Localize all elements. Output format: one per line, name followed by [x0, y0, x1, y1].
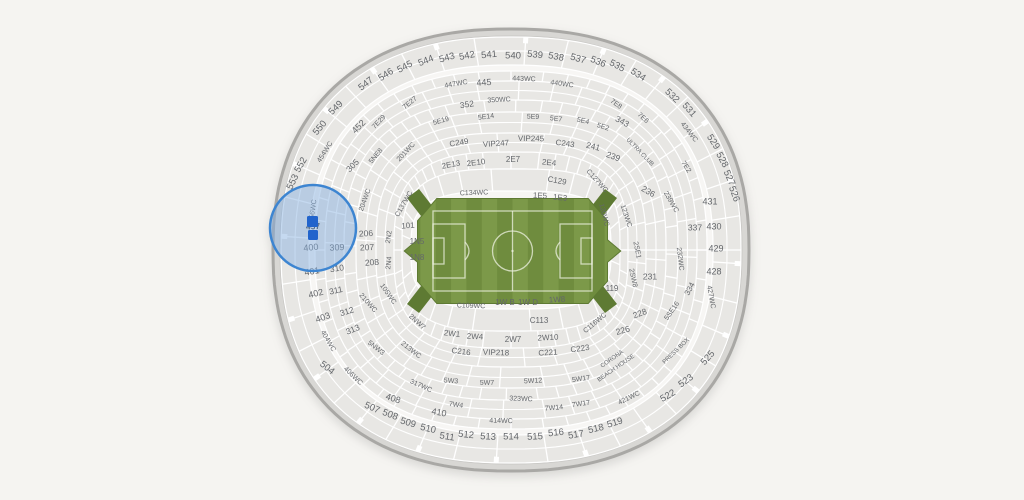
seat-map-canvas[interactable]: 5475465455445435425415405395385375365355… [0, 0, 1024, 500]
section-label-1e3[interactable]: 1E3 [552, 192, 568, 202]
vomitory-gap [288, 318, 294, 320]
section-label-540[interactable]: 540 [505, 50, 521, 61]
section-label-2w1[interactable]: 2W1 [443, 328, 461, 339]
vomitory-gap [358, 418, 362, 423]
section-label-337[interactable]: 337 [688, 222, 702, 232]
section-label-vip245[interactable]: VIP245 [518, 134, 545, 143]
section-label-511[interactable]: 511 [439, 430, 456, 443]
section-label-513[interactable]: 513 [480, 431, 496, 443]
section-label-2w10[interactable]: 2W10 [537, 333, 559, 343]
selected-seat-marker[interactable] [308, 230, 318, 240]
section-label-512[interactable]: 512 [458, 429, 475, 442]
vomitory-gap [585, 450, 587, 456]
section-label-c113[interactable]: C113 [530, 316, 549, 325]
section-label-119[interactable]: 119 [606, 284, 619, 293]
section-label-515[interactable]: 515 [527, 431, 543, 443]
section-label-5w3[interactable]: 5W3 [444, 377, 459, 385]
section-label-5w12[interactable]: 5W12 [524, 377, 543, 385]
section-label-323wc[interactable]: 323WC [509, 395, 533, 403]
section-label-5w7[interactable]: 5W7 [480, 380, 495, 387]
section-label-516[interactable]: 516 [548, 427, 565, 440]
section-label-429[interactable]: 429 [708, 243, 723, 253]
section-label-1w-d[interactable]: 1W D [518, 298, 538, 307]
vomitory-gap [693, 388, 698, 392]
section-label-vip218[interactable]: VIP218 [483, 348, 510, 358]
section-label-2n4[interactable]: 2N4 [385, 256, 393, 270]
section-label-431[interactable]: 431 [702, 196, 717, 206]
section-label-208[interactable]: 208 [365, 257, 380, 268]
section-label-1w-b[interactable]: 1W B [495, 298, 515, 307]
section-label-350wc[interactable]: 350WC [487, 96, 511, 104]
section-label-414wc[interactable]: 414WC [489, 418, 512, 425]
section-label-5e9[interactable]: 5E9 [527, 114, 540, 121]
stadium-map-svg[interactable]: 5475465455445435425415405395385375365355… [0, 0, 1024, 500]
section-label-2w7[interactable]: 2W7 [505, 335, 522, 344]
vomitory-gap [435, 44, 437, 50]
vomitory-gap [723, 334, 729, 337]
section-label-101[interactable]: 101 [401, 221, 415, 231]
section-label-c134wc[interactable]: C134WC [460, 189, 489, 197]
section-label-2e7[interactable]: 2E7 [506, 155, 521, 164]
vomitory-gap [418, 446, 421, 452]
section-label-1w8[interactable]: 1W8 [549, 295, 566, 305]
vomitory-gap [647, 427, 651, 432]
section-label-c221[interactable]: C221 [538, 348, 558, 358]
vomitory-gap [372, 68, 376, 73]
section-label-352[interactable]: 352 [459, 98, 475, 110]
vomitory-gap [314, 375, 319, 379]
section-label-2w4[interactable]: 2W4 [467, 332, 484, 342]
section-label-443wc[interactable]: 443WC [512, 75, 536, 83]
section-label-231[interactable]: 231 [643, 271, 657, 281]
vomitory-gap [602, 48, 605, 54]
selected-seat-marker[interactable] [307, 216, 318, 227]
section-label-539[interactable]: 539 [527, 49, 544, 62]
section-label-1n5[interactable]: 1N5 [410, 237, 425, 246]
section-label-2e4[interactable]: 2E4 [541, 157, 557, 167]
section-label-207[interactable]: 207 [360, 242, 375, 252]
section-label-vip247[interactable]: VIP247 [483, 138, 510, 149]
section-label-430[interactable]: 430 [706, 221, 721, 231]
section-label-445[interactable]: 445 [476, 77, 492, 88]
section-label-428[interactable]: 428 [706, 266, 721, 276]
section-label-1e5[interactable]: 1E5 [533, 191, 548, 201]
section-label-541[interactable]: 541 [481, 49, 498, 61]
vomitory-gap [660, 77, 664, 82]
section-label-1n8[interactable]: 1N8 [410, 253, 425, 262]
playing-field [405, 189, 621, 313]
section-label-c109wc[interactable]: C109WC [457, 302, 486, 310]
section-label-514[interactable]: 514 [503, 432, 519, 443]
selection-highlight-circle[interactable] [270, 185, 356, 271]
vomitory-gap [702, 121, 707, 125]
section-label-206[interactable]: 206 [359, 228, 374, 239]
